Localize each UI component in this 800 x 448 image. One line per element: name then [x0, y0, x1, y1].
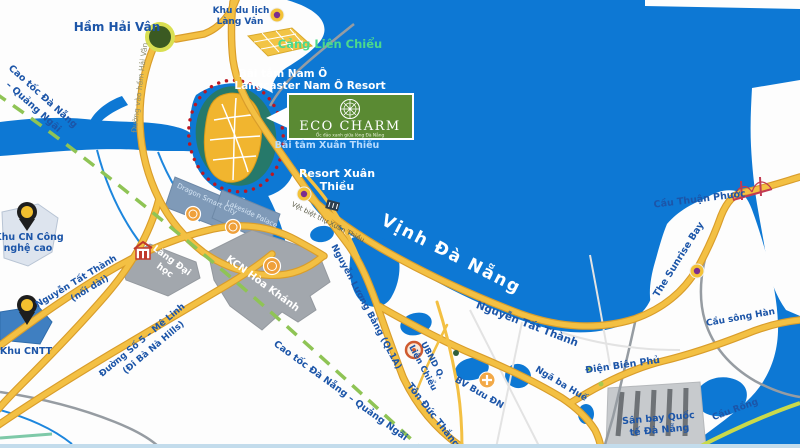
label-langcaster: Langcaster Nam Ô Resort	[234, 79, 385, 92]
resort-xuan-thieu-icon	[297, 187, 311, 201]
label-resort-xuan-thieu-2: Thiều	[320, 180, 354, 193]
kcn-hoa-khanh-icon	[264, 258, 281, 275]
label-khu-du-lich-2: Làng Vân	[217, 17, 264, 27]
map-canvas: ECO CHARM Ốc đảo xanh giữa lòng Đà Nẵng …	[0, 0, 800, 448]
label-bai-tam-nam-o: Bãi tắm Nam Ô	[239, 67, 328, 80]
lime-dot-2	[599, 382, 604, 387]
lakeside-palace-icon	[226, 220, 241, 235]
danang-location-map: ECO CHARM Ốc đảo xanh giữa lòng Đà Nẵng …	[0, 0, 800, 448]
label-khu-cn-2: nghệ cao	[4, 243, 53, 254]
label-khu-du-lich-1: Khu du lịch	[213, 6, 270, 16]
logo-title: ECO CHARM	[299, 119, 401, 134]
label-ham-hai-van: Hầm Hải Vân	[74, 20, 161, 34]
label-cang-lien-chieu: Cảng Liên Chiểu	[278, 36, 382, 51]
eco-charm-logo: ECO CHARM Ốc đảo xanh giữa lòng Đà Nẵng	[266, 94, 413, 139]
bv-buu-dien-icon	[479, 372, 495, 388]
label-khu-cn-1: Khu CN Công	[0, 232, 64, 243]
bottom-edge-strip	[0, 444, 800, 448]
dragon-smart-city-icon	[186, 207, 201, 222]
junction-dot	[453, 350, 459, 356]
label-bai-tam-xuan-thieu: Bãi tắm Xuân Thiều	[275, 140, 380, 151]
label-resort-xuan-thieu-1: Resort Xuân	[299, 167, 375, 180]
logo-ornament-icon	[341, 100, 360, 119]
label-khu-cntt: Khu CNTT	[0, 346, 53, 357]
sunrise-bay-icon	[690, 264, 704, 278]
lang-van-icon	[270, 8, 284, 22]
